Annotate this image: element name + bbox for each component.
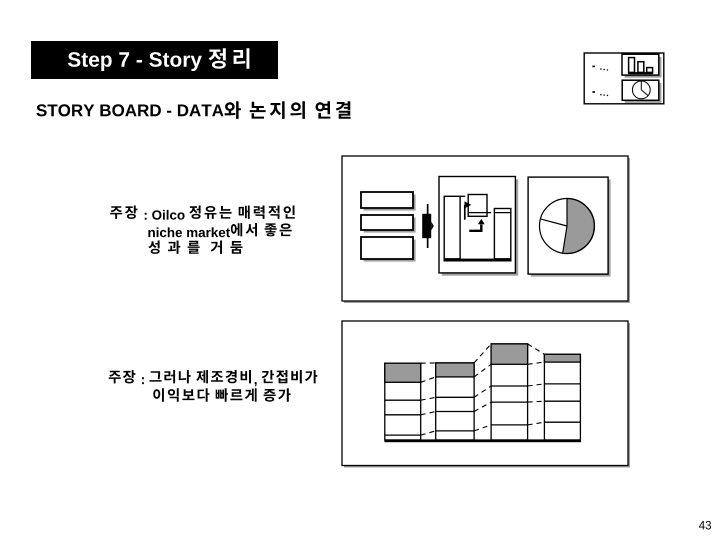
svg-text:43: 43 [699,520,712,532]
